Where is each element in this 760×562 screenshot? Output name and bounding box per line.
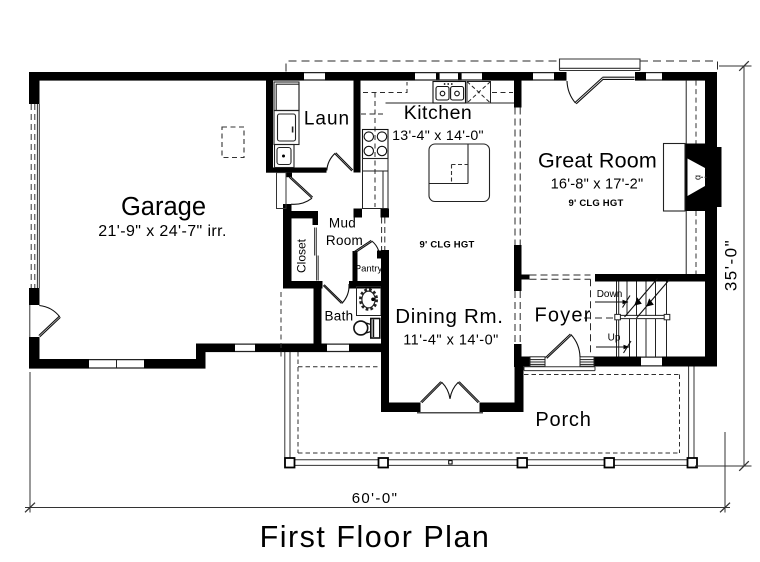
svg-text:Closet: Closet bbox=[295, 238, 309, 273]
svg-text:Garage: Garage bbox=[121, 193, 206, 221]
svg-text:Down: Down bbox=[597, 289, 623, 300]
svg-text:Foyer: Foyer bbox=[534, 305, 591, 327]
svg-text:13'-4" x 14'-0": 13'-4" x 14'-0" bbox=[392, 128, 484, 144]
svg-text:Great Room: Great Room bbox=[538, 149, 657, 173]
svg-text:21'-9" x 24'-7" irr.: 21'-9" x 24'-7" irr. bbox=[98, 223, 227, 240]
svg-text:16'-8" x 17'-2": 16'-8" x 17'-2" bbox=[551, 177, 644, 193]
svg-text:11'-4" x 14'-0": 11'-4" x 14'-0" bbox=[403, 333, 499, 349]
svg-text:9' CLG HGT: 9' CLG HGT bbox=[569, 198, 624, 209]
svg-text:Room: Room bbox=[326, 233, 363, 248]
svg-text:Bath: Bath bbox=[325, 309, 354, 324]
svg-text:35'-0": 35'-0" bbox=[722, 239, 741, 291]
svg-text:Up: Up bbox=[608, 333, 621, 344]
svg-text:First Floor Plan: First Floor Plan bbox=[260, 520, 491, 554]
svg-text:Dining Rm.: Dining Rm. bbox=[395, 305, 503, 328]
svg-text:Porch: Porch bbox=[535, 409, 591, 431]
svg-text:60'-0": 60'-0" bbox=[352, 490, 399, 507]
svg-text:Mud: Mud bbox=[329, 216, 356, 231]
svg-text:9' CLG HGT: 9' CLG HGT bbox=[420, 240, 475, 251]
svg-text:Laun: Laun bbox=[304, 109, 350, 130]
svg-text:Kitchen: Kitchen bbox=[404, 102, 473, 124]
svg-text:Pantry: Pantry bbox=[355, 264, 383, 275]
